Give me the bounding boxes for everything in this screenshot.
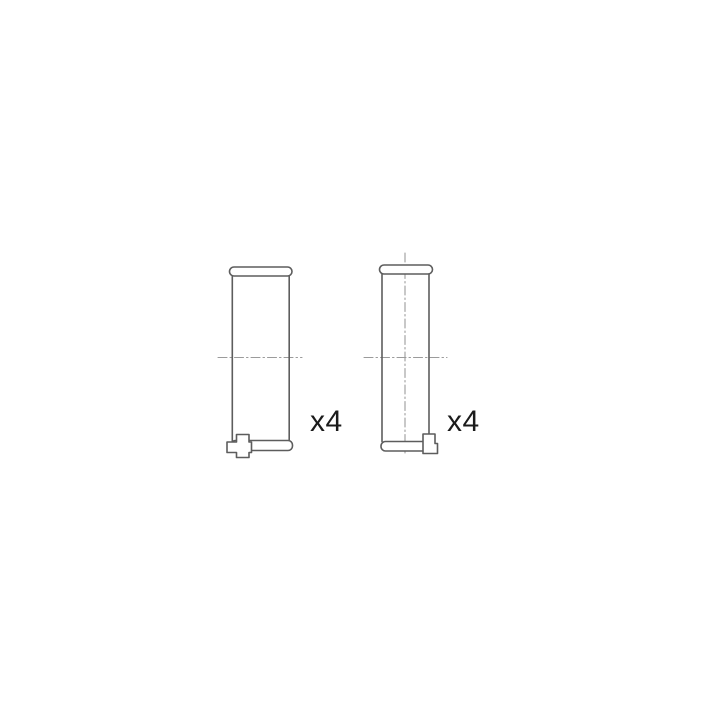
parts-diagram: x4 x4 xyxy=(0,0,720,720)
shell-bottom-rim xyxy=(381,442,428,452)
bearing-shell-right-drawing xyxy=(364,253,447,454)
locating-lug-left xyxy=(227,435,252,458)
bearing-drawings-svg xyxy=(0,0,720,720)
locating-lug-right xyxy=(423,434,438,454)
bearing-shell-left-drawing xyxy=(218,267,302,458)
shell-top-rim xyxy=(230,267,293,276)
shell-top-rim xyxy=(380,265,433,274)
quantity-label-right: x4 xyxy=(447,407,480,437)
quantity-label-left: x4 xyxy=(310,407,343,437)
